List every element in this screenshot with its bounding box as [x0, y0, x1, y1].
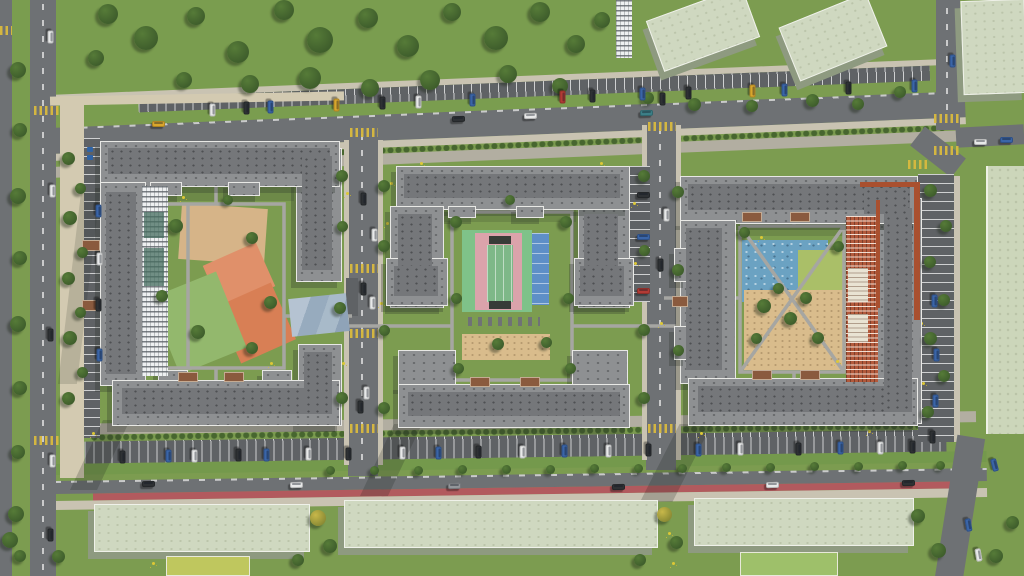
- tree: [378, 402, 390, 414]
- roof-detail: [884, 208, 912, 412]
- tree: [77, 247, 88, 258]
- tree: [227, 41, 249, 63]
- tree: [594, 12, 610, 28]
- building: [228, 182, 260, 196]
- car: [590, 90, 596, 103]
- tree: [62, 272, 75, 285]
- building: [694, 498, 914, 546]
- tree: [1006, 516, 1019, 529]
- tree: [672, 264, 684, 276]
- tree: [88, 50, 104, 66]
- car: [934, 349, 940, 362]
- car: [346, 448, 352, 461]
- tree: [2, 532, 18, 548]
- building: [166, 556, 250, 576]
- tree: [336, 392, 348, 404]
- building: [94, 504, 310, 552]
- car: [950, 55, 956, 68]
- tree: [246, 232, 258, 244]
- tree: [337, 221, 348, 232]
- car: [152, 121, 165, 127]
- car: [878, 442, 884, 455]
- car: [361, 193, 367, 206]
- tree: [484, 26, 508, 50]
- tree: [634, 464, 643, 473]
- tree: [924, 332, 937, 345]
- flower-patch: [660, 322, 663, 325]
- flower-patch: [420, 162, 423, 165]
- facade: [178, 372, 198, 382]
- roof-detail: [408, 392, 620, 416]
- flower-patch: [92, 432, 95, 435]
- tree: [292, 554, 304, 566]
- facade: [860, 182, 914, 187]
- tree: [560, 216, 572, 228]
- car: [306, 448, 312, 461]
- tree: [13, 381, 27, 395]
- car: [640, 88, 646, 101]
- tree: [931, 543, 946, 558]
- tree: [241, 75, 259, 93]
- car: [664, 209, 670, 222]
- car: [452, 116, 465, 122]
- tree: [722, 463, 731, 472]
- building: [986, 166, 1024, 434]
- car: [520, 446, 526, 459]
- flower-patch: [672, 562, 675, 565]
- tree: [639, 245, 650, 256]
- facade: [224, 372, 244, 382]
- tree: [458, 465, 467, 474]
- facade: [144, 248, 164, 286]
- car: [97, 253, 103, 266]
- car: [334, 99, 340, 112]
- car: [416, 96, 422, 109]
- car: [290, 482, 303, 488]
- tree: [414, 466, 423, 475]
- tree: [922, 406, 934, 418]
- tree: [75, 307, 86, 318]
- facade: [790, 212, 810, 222]
- car: [210, 104, 216, 117]
- tree: [638, 170, 650, 182]
- tree: [810, 462, 819, 471]
- car: [364, 387, 370, 400]
- car: [933, 395, 939, 408]
- car: [838, 442, 844, 455]
- car: [766, 482, 779, 488]
- facade: [144, 212, 164, 238]
- building: [344, 500, 658, 548]
- flower-patch: [634, 262, 637, 265]
- car: [400, 447, 406, 460]
- tree: [134, 26, 158, 50]
- flower-patch: [380, 302, 383, 305]
- tree: [924, 256, 936, 268]
- tree: [634, 554, 646, 566]
- tree: [443, 3, 461, 21]
- tree: [854, 462, 863, 471]
- car: [142, 481, 155, 487]
- tree: [52, 550, 65, 563]
- roof-detail: [404, 174, 620, 198]
- facade: [752, 370, 772, 380]
- tree: [751, 333, 762, 344]
- tree: [670, 536, 683, 549]
- street-furniture: [87, 155, 93, 160]
- tree: [757, 299, 771, 313]
- tree: [499, 65, 517, 83]
- car: [696, 444, 702, 457]
- car: [930, 431, 936, 444]
- tree: [638, 324, 650, 336]
- tree: [310, 510, 326, 526]
- roof-detail: [580, 266, 624, 296]
- tree: [274, 0, 294, 20]
- car: [96, 205, 102, 218]
- car: [910, 441, 916, 454]
- car: [120, 451, 126, 464]
- tree: [938, 370, 950, 382]
- roof-detail: [108, 148, 330, 174]
- tree: [784, 312, 797, 325]
- tree: [672, 186, 684, 198]
- car: [1000, 137, 1013, 143]
- tree: [924, 184, 937, 197]
- tree: [678, 464, 687, 473]
- tree: [766, 463, 775, 472]
- tree: [264, 296, 277, 309]
- car: [912, 80, 918, 93]
- car: [436, 447, 442, 460]
- flower-patch: [600, 162, 603, 165]
- roof-detail: [302, 156, 332, 270]
- car: [658, 259, 664, 272]
- car: [782, 84, 788, 97]
- tree: [773, 283, 784, 294]
- car: [50, 185, 56, 198]
- tree: [75, 183, 86, 194]
- car: [372, 229, 378, 242]
- facade: [520, 377, 540, 387]
- building: [960, 0, 1024, 95]
- facade: [470, 377, 490, 387]
- tree: [378, 180, 390, 192]
- tree: [590, 464, 599, 473]
- building: [740, 552, 838, 576]
- tree: [938, 294, 950, 306]
- tree: [936, 461, 945, 470]
- tree: [223, 195, 233, 205]
- tree: [378, 240, 390, 252]
- facade: [848, 314, 868, 342]
- tree: [530, 2, 550, 22]
- tree: [450, 216, 462, 228]
- tree: [565, 363, 576, 374]
- tree: [492, 338, 504, 350]
- tree: [62, 152, 75, 165]
- building: [516, 206, 544, 218]
- tree: [806, 94, 819, 107]
- tree: [657, 507, 672, 522]
- tree: [898, 461, 907, 470]
- tree: [191, 325, 205, 339]
- roof-detail: [304, 352, 332, 414]
- car: [974, 139, 987, 145]
- tree: [800, 292, 812, 304]
- tree: [638, 392, 650, 404]
- play-detail: [468, 317, 540, 326]
- street-furniture: [87, 147, 93, 152]
- roof-detail: [394, 266, 438, 296]
- car: [560, 91, 566, 104]
- tree: [11, 445, 25, 459]
- flower-patch: [633, 202, 636, 205]
- car: [470, 94, 476, 107]
- tree: [13, 123, 27, 137]
- car: [686, 87, 692, 100]
- tree: [246, 342, 258, 354]
- play-detail: [489, 301, 511, 309]
- tree: [567, 35, 585, 53]
- tree: [502, 465, 511, 474]
- tree: [10, 62, 26, 78]
- car: [637, 234, 650, 240]
- car: [932, 295, 938, 308]
- flower-patch: [700, 432, 703, 435]
- car: [244, 102, 250, 115]
- tree: [8, 506, 24, 522]
- tree: [894, 86, 906, 98]
- flower-patch: [836, 360, 839, 363]
- car: [640, 110, 653, 116]
- car: [606, 445, 612, 458]
- car: [236, 449, 242, 462]
- tree: [453, 363, 464, 374]
- car: [902, 480, 915, 486]
- car: [637, 288, 650, 294]
- car: [846, 82, 852, 95]
- tree: [546, 465, 555, 474]
- flower-patch: [152, 562, 155, 565]
- tree: [14, 550, 26, 562]
- car: [50, 455, 56, 468]
- car: [361, 283, 367, 296]
- tree: [940, 220, 952, 232]
- flower-patch: [868, 430, 871, 433]
- facade: [616, 0, 632, 58]
- flower-patch: [668, 532, 671, 535]
- flower-patch: [182, 196, 185, 199]
- tree: [176, 72, 192, 88]
- flower-patch: [270, 362, 273, 365]
- tree: [746, 100, 758, 112]
- flower-patch: [346, 192, 349, 195]
- tree: [812, 332, 824, 344]
- tree: [63, 331, 77, 345]
- tree: [13, 251, 27, 265]
- tree: [10, 316, 26, 332]
- car: [48, 329, 54, 342]
- car: [96, 299, 102, 312]
- tree: [370, 466, 379, 475]
- aerial-residential-render: [0, 0, 1024, 576]
- flower-patch: [342, 362, 345, 365]
- tree: [336, 170, 348, 182]
- car: [268, 101, 274, 114]
- car: [370, 297, 376, 310]
- roof-detail: [864, 188, 908, 214]
- tree: [326, 466, 335, 475]
- facade: [672, 296, 688, 307]
- tree: [307, 27, 333, 53]
- roof-detail: [686, 228, 722, 370]
- flower-patch: [760, 236, 763, 239]
- car: [646, 444, 652, 457]
- tree: [852, 98, 864, 110]
- car: [524, 113, 537, 119]
- play-detail: [288, 293, 350, 337]
- tree: [334, 302, 346, 314]
- car: [796, 443, 802, 456]
- flower-patch: [390, 182, 393, 185]
- tree: [379, 325, 390, 336]
- roof-detail: [106, 192, 136, 374]
- walkway: [452, 212, 572, 380]
- tree: [541, 337, 552, 348]
- car: [97, 349, 103, 362]
- roof-detail: [698, 386, 906, 412]
- tree: [77, 367, 88, 378]
- car: [612, 484, 625, 490]
- tree: [673, 345, 684, 356]
- car: [192, 450, 198, 463]
- building: [398, 350, 456, 388]
- tree: [563, 293, 574, 304]
- facade: [914, 182, 920, 320]
- tree: [505, 195, 515, 205]
- tree: [187, 7, 205, 25]
- tree: [739, 227, 750, 238]
- tree: [62, 392, 75, 405]
- car: [264, 449, 270, 462]
- tree: [63, 211, 77, 225]
- car: [660, 93, 666, 106]
- car: [380, 97, 386, 110]
- tree: [169, 219, 183, 233]
- flower-patch: [386, 222, 389, 225]
- tree: [420, 70, 440, 90]
- car: [48, 529, 54, 542]
- play-detail: [489, 236, 511, 244]
- facade: [742, 212, 762, 222]
- car: [562, 445, 568, 458]
- tree: [323, 539, 337, 553]
- tree: [397, 35, 419, 57]
- car: [48, 31, 54, 44]
- tree: [10, 188, 26, 204]
- car: [166, 450, 172, 463]
- tree: [299, 67, 321, 89]
- car: [476, 446, 482, 459]
- facade: [876, 200, 880, 308]
- tree: [911, 509, 925, 523]
- flower-patch: [922, 382, 925, 385]
- roof-detail: [122, 388, 328, 414]
- tree: [358, 8, 378, 28]
- building: [572, 350, 628, 388]
- tree: [98, 4, 118, 24]
- car: [637, 192, 650, 198]
- tree: [451, 293, 462, 304]
- tree: [156, 290, 168, 302]
- car: [750, 85, 756, 98]
- car: [448, 483, 461, 489]
- facade: [848, 268, 868, 302]
- car: [358, 401, 364, 414]
- car: [738, 443, 744, 456]
- facade: [800, 370, 820, 380]
- tree: [361, 79, 379, 97]
- tree: [833, 241, 844, 252]
- tree: [989, 549, 1003, 563]
